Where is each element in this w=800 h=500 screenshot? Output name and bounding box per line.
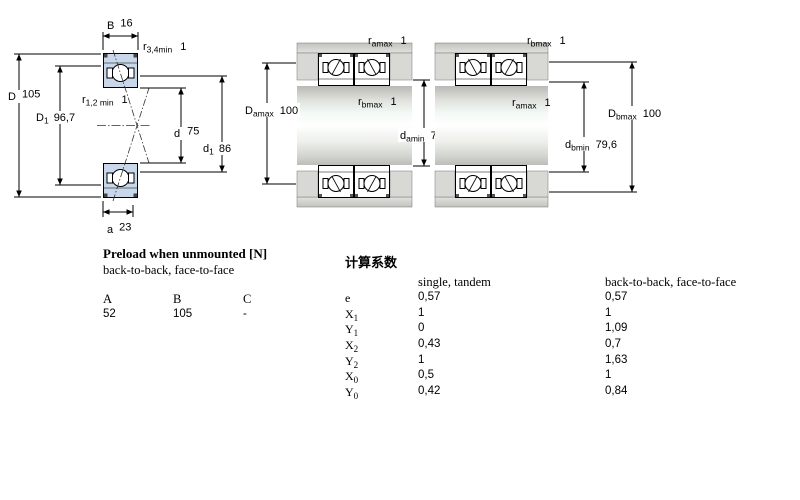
preload-table: Preload when unmounted [N] back-to-back,… (103, 246, 363, 324)
dim-a-label: a23 (107, 222, 131, 237)
factors-table-header-row: single, tandem back-to-back, face-to-fac… (345, 275, 785, 291)
dim-width-label: B16 (107, 18, 133, 33)
preload-col-A: A (103, 292, 112, 307)
cross-section-drawing: B16 r3,4min1 D105 D196,7 r1,2 min1 d75 d… (2, 18, 233, 237)
factors-row-X1: X1 1 1 (345, 307, 785, 323)
preload-col-B: B (173, 292, 181, 307)
dim-r12-label: r1,2 min1 (82, 94, 128, 108)
preload-value-C: - (243, 308, 247, 320)
dim-r34-label: r3,4min1 (143, 41, 186, 55)
calculation-factors-table: 计算系数 single, tandem back-to-back, face-t… (345, 252, 785, 401)
factors-row-X2: X2 0,43 0,7 (345, 338, 785, 354)
factors-table-title: 计算系数 (345, 252, 785, 271)
bearing-datasheet-page: B16 r3,4min1 D105 D196,7 r1,2 min1 d75 d… (0, 0, 800, 500)
factors-row-Y1: Y1 0 1,09 (345, 322, 785, 338)
preload-table-value-row: 52 105 - (103, 308, 363, 324)
arrangement-back-to-back-drawing: ramax1 rbmax1 Damax100 damin79,6 (243, 35, 458, 207)
preload-table-subtitle: back-to-back, face-to-face (103, 263, 363, 278)
preload-value-B: 105 (173, 308, 192, 320)
dim-ramax-a-label: ramax1 (368, 35, 407, 49)
preload-value-A: 52 (103, 308, 116, 320)
factors-row-e: e 0,57 0,57 (345, 291, 785, 307)
factors-col2-header: back-to-back, face-to-face (605, 275, 736, 290)
arrangement-face-to-face-drawing: rbmax1 ramax1 Dbmax100 dbmin79,6 (435, 35, 666, 207)
factors-row-X0: X0 0,5 1 (345, 369, 785, 385)
preload-table-header-row: A B C (103, 292, 363, 308)
factors-col1-header: single, tandem (418, 275, 491, 290)
preload-table-title: Preload when unmounted [N] (103, 246, 363, 262)
factors-row-Y2: Y2 1 1,63 (345, 354, 785, 370)
factors-row-Y0: Y0 0,42 0,84 (345, 385, 785, 401)
preload-col-C: C (243, 292, 251, 307)
dim-D1-label: D196,7 (36, 112, 75, 126)
technical-drawings: B16 r3,4min1 D105 D196,7 r1,2 min1 d75 d… (0, 0, 800, 245)
dim-rbmax-b-label: rbmax1 (527, 35, 566, 49)
